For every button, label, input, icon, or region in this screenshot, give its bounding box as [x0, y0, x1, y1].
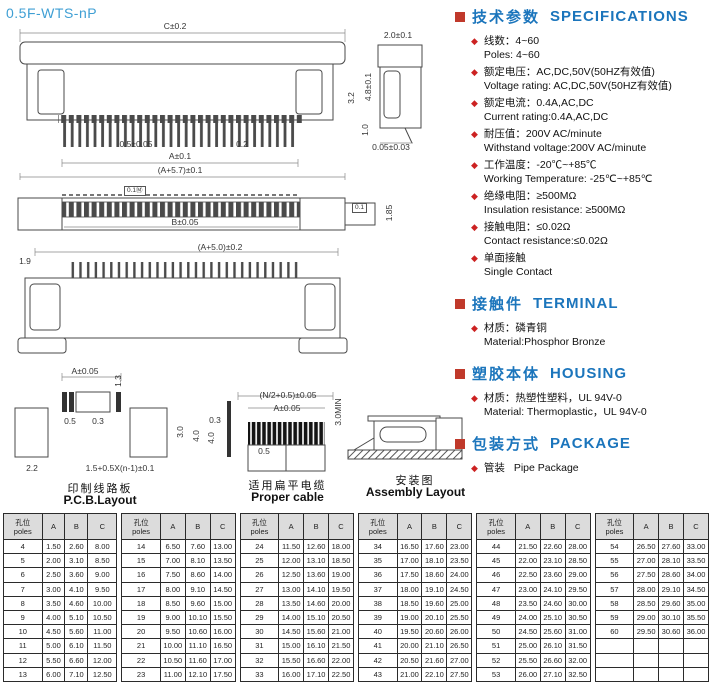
table-cell: 20 — [122, 625, 161, 639]
table-cell: 7 — [4, 582, 43, 596]
table-cell: 19.00 — [329, 568, 354, 582]
table-cell: 41 — [358, 639, 397, 653]
table-cell: 28.00 — [565, 540, 590, 554]
table-cell: 13.50 — [210, 554, 235, 568]
header-b: B — [422, 514, 447, 540]
table-cell: 29.00 — [634, 610, 659, 624]
table-row: 5627.5028.6034.00 — [595, 568, 708, 582]
table-cell: 2.50 — [42, 568, 65, 582]
table-cell: 18.50 — [397, 596, 422, 610]
heading-cn: 塑胶本体 — [472, 363, 540, 384]
table-cell: 13 — [4, 667, 43, 681]
table-cell: 9.00 — [160, 610, 185, 624]
table-cell: 12.10 — [185, 667, 210, 681]
table-cell: 4.50 — [42, 625, 65, 639]
bottom-view-drawing — [8, 238, 418, 358]
table-cell: 22.60 — [540, 540, 565, 554]
table-cell: 22.00 — [515, 554, 540, 568]
dim-pcb-side-03: 0.3 — [203, 415, 227, 425]
table-row: 2110.0011.1016.50 — [122, 639, 235, 653]
spec-item-terminal-material: ◆ 材质：磷青铜 Material:Phosphor Bronze — [471, 322, 709, 349]
table-row: 4924.0025.1030.50 — [477, 610, 590, 624]
table-cell: 2.60 — [65, 540, 88, 554]
table-cell: 22.50 — [515, 568, 540, 582]
front-view-drawing — [8, 22, 444, 180]
table-cell: 32 — [240, 653, 279, 667]
table-cell: 20.50 — [397, 653, 422, 667]
table-cell: 20.60 — [422, 625, 447, 639]
table-cell: 30.50 — [565, 610, 590, 624]
table-cell — [634, 653, 659, 667]
table-cell: 17.00 — [397, 554, 422, 568]
table-row: 4522.0023.1028.50 — [477, 554, 590, 568]
spec-item-temperature: ◆ 工作温度：-20℃~+85℃ Working Temperature: -2… — [471, 159, 709, 186]
table-cell: 13.00 — [279, 582, 304, 596]
header-poles-en: poles — [241, 527, 279, 536]
table-row: 3014.5015.6021.00 — [240, 625, 353, 639]
table-row: 2713.0014.1019.50 — [240, 582, 353, 596]
diamond-bullet-icon: ◆ — [471, 128, 478, 155]
table-cell: 4.60 — [65, 596, 88, 610]
table-row: 5024.5025.6031.00 — [477, 625, 590, 639]
table-cell — [634, 639, 659, 653]
table-cell: 17.10 — [304, 667, 329, 681]
table-cell: 5.50 — [42, 653, 65, 667]
table-cell: 5.60 — [65, 625, 88, 639]
header-poles: 孔位 poles — [358, 514, 397, 540]
spec-en: Pipe Package — [514, 462, 579, 474]
table-cell: 8.00 — [160, 582, 185, 596]
table-cell: 15.50 — [279, 653, 304, 667]
heading-cn: 包装方式 — [472, 433, 540, 454]
table-cell: 18.60 — [422, 568, 447, 582]
header-c: C — [210, 514, 235, 540]
header-a: A — [397, 514, 422, 540]
table-cell: 50 — [477, 625, 516, 639]
spec-cn: 绝缘电阻：≥500MΩ — [484, 190, 625, 204]
table-cell — [595, 653, 634, 667]
poles-table-4: 孔位 poles A B C 3416.5017.6023.003517.001… — [358, 513, 472, 682]
dim-pitch: 0.5±0.05 — [105, 139, 167, 149]
table-cell: 19 — [122, 610, 161, 624]
table-cell: 10.00 — [160, 639, 185, 653]
table-cell: 53 — [477, 667, 516, 681]
table-cell: 26 — [240, 568, 279, 582]
diamond-bullet-icon: ◆ — [471, 66, 478, 93]
spec-item-withstand: ◆ 耐压值：200V AC/minute Withstand voltage:2… — [471, 128, 709, 155]
table-cell: 25.00 — [447, 596, 472, 610]
table-cell: 12.60 — [304, 540, 329, 554]
table-cell: 17 — [122, 582, 161, 596]
table-cell: 45 — [477, 554, 516, 568]
table-cell: 18.00 — [329, 540, 354, 554]
dim-bottom-total: (A+5.0)±0.2 — [160, 242, 280, 252]
table-cell: 17.50 — [210, 667, 235, 681]
dim-side-foot: 1.0 — [360, 120, 370, 140]
tolerance-callout-left: 0.1Ⓜ — [124, 186, 146, 196]
table-cell: 28.50 — [565, 554, 590, 568]
table-cell: 32.50 — [565, 667, 590, 681]
spec-cn: 接触电阻：≤0.02Ω — [484, 221, 608, 235]
table-cell: 23.60 — [540, 568, 565, 582]
header-poles-cn: 孔位 — [359, 518, 397, 527]
dim-side-height: 4.8±0.1 — [363, 65, 373, 109]
header-c: C — [684, 514, 709, 540]
table-cell: 4.10 — [65, 582, 88, 596]
table-cell: 10 — [4, 625, 43, 639]
spec-en: Material:Phosphor Bronze — [484, 336, 605, 350]
header-a: A — [42, 514, 65, 540]
dim-side-top: 2.0±0.1 — [376, 30, 420, 40]
table-cell: 11.50 — [279, 540, 304, 554]
square-bullet-icon — [455, 369, 465, 379]
table-cell: 28.10 — [659, 554, 684, 568]
spec-cn: 耐压值：200V AC/minute — [484, 128, 646, 142]
table-row: 115.006.1011.50 — [4, 639, 117, 653]
table-row — [595, 653, 708, 667]
dim-b: B±0.05 — [150, 217, 220, 227]
table-cell: 21 — [122, 639, 161, 653]
spec-item-poles: ◆ 线数：4~60 Poles: 4~60 — [471, 35, 709, 62]
cable-caption-en: Proper cable — [230, 490, 345, 504]
table-cell: 3.10 — [65, 554, 88, 568]
table-cell: 8 — [4, 596, 43, 610]
header-poles-cn: 孔位 — [122, 518, 160, 527]
header-poles-en: poles — [4, 527, 42, 536]
table-cell: 9.00 — [88, 568, 117, 582]
table-row: 3919.0020.1025.50 — [358, 610, 471, 624]
dim-pcb-side-40: 4.0 — [206, 428, 216, 448]
header-poles-cn: 孔位 — [596, 518, 634, 527]
table-cell: 12.50 — [279, 568, 304, 582]
table-row: 4823.5024.6030.00 — [477, 596, 590, 610]
dim-pcb-13: 1.3 — [113, 371, 123, 391]
table-cell: 19.50 — [329, 582, 354, 596]
table-cell: 16.50 — [397, 540, 422, 554]
header-poles-cn: 孔位 — [477, 518, 515, 527]
table-row: 2612.5013.6019.00 — [240, 568, 353, 582]
table-cell: 9.50 — [160, 625, 185, 639]
table-cell: 23.50 — [447, 554, 472, 568]
table-cell: 11.10 — [185, 639, 210, 653]
table-cell: 33 — [240, 667, 279, 681]
table-cell: 12.00 — [279, 554, 304, 568]
table-row: 5225.5026.6032.00 — [477, 653, 590, 667]
table-cell: 24.00 — [515, 610, 540, 624]
header-poles: 孔位 poles — [595, 514, 634, 540]
table-cell: 40 — [358, 625, 397, 639]
section-heading-package: 包装方式 PACKAGE — [455, 433, 709, 454]
header-b: B — [65, 514, 88, 540]
header-b: B — [304, 514, 329, 540]
table-cell: 5.10 — [65, 610, 88, 624]
table-cell: 25.60 — [540, 625, 565, 639]
table-cell: 8.10 — [185, 554, 210, 568]
table-cell: 7.50 — [160, 568, 185, 582]
table-cell: 38 — [358, 596, 397, 610]
table-cell: 7.00 — [160, 554, 185, 568]
spec-en: Poles: 4~60 — [484, 49, 540, 63]
table-cell: 4 — [4, 540, 43, 554]
spec-en: Working Temperature: -25℃~+85℃ — [484, 173, 653, 187]
table-cell: 25.00 — [515, 639, 540, 653]
heading-en: SPECIFICATIONS — [550, 8, 689, 25]
spec-item-contact-resistance: ◆ 接触电阻：≤0.02Ω Contact resistance:≤0.02Ω — [471, 221, 709, 248]
table-row: 3115.0016.1021.50 — [240, 639, 353, 653]
table-cell: 16.60 — [304, 653, 329, 667]
table-cell — [634, 667, 659, 681]
header-poles: 孔位 poles — [4, 514, 43, 540]
table-cell: 23.00 — [515, 582, 540, 596]
table-cell: 19.50 — [397, 625, 422, 639]
table-cell: 6.10 — [65, 639, 88, 653]
table-row: 2813.5014.6020.00 — [240, 596, 353, 610]
dim-pcb-05: 0.5 — [58, 416, 82, 426]
table-cell: 10.60 — [185, 625, 210, 639]
poles-table-1: 孔位 poles A B C 41.502.608.0052.003.108.5… — [3, 513, 117, 682]
dim-pcb-03: 0.3 — [86, 416, 110, 426]
table-cell: 21.10 — [422, 639, 447, 653]
dim-pcb-formula: 1.5+0.5X(n-1)±0.1 — [50, 463, 190, 473]
table-cell: 24 — [240, 540, 279, 554]
table-cell: 27.00 — [447, 653, 472, 667]
table-cell: 33.00 — [684, 540, 709, 554]
table-cell — [659, 653, 684, 667]
table-row: 4019.5020.6026.00 — [358, 625, 471, 639]
table-cell: 20.00 — [329, 596, 354, 610]
table-row: 94.005.1010.50 — [4, 610, 117, 624]
table-cell: 49 — [477, 610, 516, 624]
table-cell: 52 — [477, 653, 516, 667]
header-c: C — [88, 514, 117, 540]
specifications-panel: 技术参数 SPECIFICATIONS ◆ 线数：4~60 Poles: 4~6… — [455, 6, 709, 480]
table-cell: 27.50 — [447, 667, 472, 681]
poles-table-2: 孔位 poles A B C 146.507.6013.00157.008.10… — [121, 513, 235, 682]
table-cell: 18.50 — [329, 554, 354, 568]
dim-a: A±0.1 — [135, 151, 225, 161]
table-cell: 28.50 — [634, 596, 659, 610]
part-number-title: 0.5F-WTS-nP — [6, 5, 97, 21]
pcb-ground — [348, 450, 462, 459]
table-row: 4421.5022.6028.00 — [477, 540, 590, 554]
header-poles: 孔位 poles — [240, 514, 279, 540]
table-cell: 6.60 — [65, 653, 88, 667]
spec-item-housing-material: ◆ 材质：热塑性塑料，UL 94V-0 Material: Thermoplas… — [471, 392, 709, 419]
heading-en: TERMINAL — [533, 295, 619, 312]
table-cell: 6.00 — [42, 667, 65, 681]
table-cell: 16.10 — [304, 639, 329, 653]
table-cell: 3.50 — [42, 596, 65, 610]
table-cell: 54 — [595, 540, 634, 554]
table-cell: 3.00 — [42, 582, 65, 596]
table-cell: 20.00 — [397, 639, 422, 653]
poles-table-3: 孔位 poles A B C 2411.5012.6018.002512.001… — [240, 513, 354, 682]
header-poles-en: poles — [477, 527, 515, 536]
table-row — [595, 639, 708, 653]
table-cell: 27.50 — [634, 568, 659, 582]
table-cell: 9.50 — [88, 582, 117, 596]
table-cell: 20.50 — [329, 610, 354, 624]
dim-height-32: 3.2 — [346, 88, 356, 108]
table-cell: 15.00 — [279, 639, 304, 653]
table-cell: 17.60 — [422, 540, 447, 554]
assembly-caption-en: Assembly Layout — [348, 485, 483, 499]
table-cell: 1.50 — [42, 540, 65, 554]
table-cell: 10.00 — [88, 596, 117, 610]
table-cell: 14.50 — [210, 582, 235, 596]
table-row: 136.007.1012.50 — [4, 667, 117, 681]
diamond-bullet-icon: ◆ — [471, 97, 478, 124]
table-cell: 6 — [4, 568, 43, 582]
poles-table-5: 孔位 poles A B C 4421.5022.6028.004522.002… — [476, 513, 590, 682]
pole-dimension-tables: 孔位 poles A B C 41.502.608.0052.003.108.5… — [3, 513, 709, 682]
header-c: C — [329, 514, 354, 540]
table-cell: 9.10 — [185, 582, 210, 596]
table-cell: 29.00 — [565, 568, 590, 582]
spec-item-single-contact: ◆ 单面接触 Single Contact — [471, 252, 709, 279]
spec-en: Material: Thermoplastic，UL 94V-0 — [484, 406, 647, 420]
table-cell: 13.60 — [304, 568, 329, 582]
assembly-drawing — [340, 408, 470, 468]
table-cell: 26.50 — [447, 639, 472, 653]
table-cell: 36 — [358, 568, 397, 582]
table-cell: 24.60 — [540, 596, 565, 610]
table-cell: 11.50 — [88, 639, 117, 653]
table-row: 2914.0015.1020.50 — [240, 610, 353, 624]
table-cell — [595, 639, 634, 653]
table-cell: 28.60 — [659, 568, 684, 582]
spec-en: Voltage rating: AC,DC,50V(50HZ有效值) — [484, 80, 672, 94]
table-row: 178.009.1014.50 — [122, 582, 235, 596]
table-row: 4321.0022.1027.50 — [358, 667, 471, 681]
table-cell: 4.00 — [42, 610, 65, 624]
diamond-bullet-icon: ◆ — [471, 190, 478, 217]
table-cell: 25 — [240, 554, 279, 568]
contact-comb — [62, 202, 300, 217]
table-cell: 14.00 — [210, 568, 235, 582]
table-cell: 31.50 — [565, 639, 590, 653]
table-row: 209.5010.6016.00 — [122, 625, 235, 639]
table-cell: 32.00 — [565, 653, 590, 667]
spec-cn: 线数：4~60 — [484, 35, 540, 49]
table-cell: 7.60 — [185, 540, 210, 554]
table-cell: 29.50 — [634, 625, 659, 639]
table-cell: 26.50 — [634, 540, 659, 554]
table-cell: 11.00 — [88, 625, 117, 639]
header-b: B — [659, 514, 684, 540]
table-row: 2512.0013.1018.50 — [240, 554, 353, 568]
table-cell: 13.00 — [210, 540, 235, 554]
dim-total-width: (A+5.7)±0.1 — [115, 165, 245, 175]
table-row: 4622.5023.6029.00 — [477, 568, 590, 582]
table-cell: 14.60 — [304, 596, 329, 610]
header-poles-en: poles — [596, 527, 634, 536]
table-cell — [659, 639, 684, 653]
table-row: 5527.0028.1033.50 — [595, 554, 708, 568]
table-cell: 19.10 — [422, 582, 447, 596]
table-row: 2210.5011.6017.00 — [122, 653, 235, 667]
table-row: 2311.0012.1017.50 — [122, 667, 235, 681]
header-a: A — [634, 514, 659, 540]
table-cell: 28.00 — [634, 582, 659, 596]
table-cell: 19.60 — [422, 596, 447, 610]
table-cell — [684, 639, 709, 653]
table-cell: 34.00 — [684, 568, 709, 582]
table-cell: 24.00 — [447, 568, 472, 582]
header-b: B — [540, 514, 565, 540]
diamond-bullet-icon: ◆ — [471, 221, 478, 248]
table-cell: 35.50 — [684, 610, 709, 624]
table-row — [595, 667, 708, 681]
spec-cn: 单面接触 — [484, 252, 552, 266]
table-cell: 19.00 — [397, 610, 422, 624]
table-cell: 20.10 — [422, 610, 447, 624]
dim-cable-05: 0.5 — [252, 446, 276, 456]
table-cell: 25.10 — [540, 610, 565, 624]
table-row: 5929.0030.1035.50 — [595, 610, 708, 624]
table-cell: 3.60 — [65, 568, 88, 582]
table-cell: 16.00 — [279, 667, 304, 681]
dim-cable-a: A±0.05 — [247, 403, 327, 413]
dim-edge-19: 1.9 — [12, 256, 38, 266]
table-row: 199.0010.1015.50 — [122, 610, 235, 624]
table-cell: 26.60 — [540, 653, 565, 667]
table-cell: 14.00 — [279, 610, 304, 624]
table-cell: 58 — [595, 596, 634, 610]
table-cell: 9.60 — [185, 596, 210, 610]
heading-en: PACKAGE — [550, 435, 631, 452]
dim-185: 1.85 — [384, 201, 394, 225]
table-cell: 27 — [240, 582, 279, 596]
table-row: 188.509.6015.00 — [122, 596, 235, 610]
table-cell: 30 — [240, 625, 279, 639]
table-cell: 11.00 — [160, 667, 185, 681]
table-row: 3416.5017.6023.00 — [358, 540, 471, 554]
table-cell: 23.00 — [447, 540, 472, 554]
section-heading-specifications: 技术参数 SPECIFICATIONS — [455, 6, 709, 27]
table-cell: 27.00 — [634, 554, 659, 568]
table-cell: 29.50 — [565, 582, 590, 596]
section-heading-terminal: 接触件 TERMINAL — [455, 293, 709, 314]
table-cell: 30.00 — [565, 596, 590, 610]
spec-item-insulation: ◆ 绝缘电阻：≥500MΩ Insulation resistance: ≥50… — [471, 190, 709, 217]
table-cell: 21.50 — [329, 639, 354, 653]
table-row: 5426.5027.6033.00 — [595, 540, 708, 554]
table-cell: 25.50 — [515, 653, 540, 667]
table-cell: 31.00 — [565, 625, 590, 639]
table-row: 83.504.6010.00 — [4, 596, 117, 610]
table-cell: 12.50 — [88, 667, 117, 681]
square-bullet-icon — [455, 12, 465, 22]
table-cell: 60 — [595, 625, 634, 639]
table-cell — [684, 667, 709, 681]
table-cell — [659, 667, 684, 681]
header-a: A — [515, 514, 540, 540]
table-cell: 21.60 — [422, 653, 447, 667]
table-cell: 33.50 — [684, 554, 709, 568]
table-row: 5828.5029.6035.00 — [595, 596, 708, 610]
table-cell: 43 — [358, 667, 397, 681]
table-cell: 15.10 — [304, 610, 329, 624]
datasheet-page: 0.5F-WTS-nP — [0, 0, 711, 687]
table-cell: 14.50 — [279, 625, 304, 639]
table-row: 4723.0024.1029.50 — [477, 582, 590, 596]
table-cell: 9 — [4, 610, 43, 624]
table-cell: 57 — [595, 582, 634, 596]
table-row: 4120.0021.1026.50 — [358, 639, 471, 653]
table-row: 41.502.608.00 — [4, 540, 117, 554]
dim-pin-width: 0.2 — [225, 139, 259, 149]
